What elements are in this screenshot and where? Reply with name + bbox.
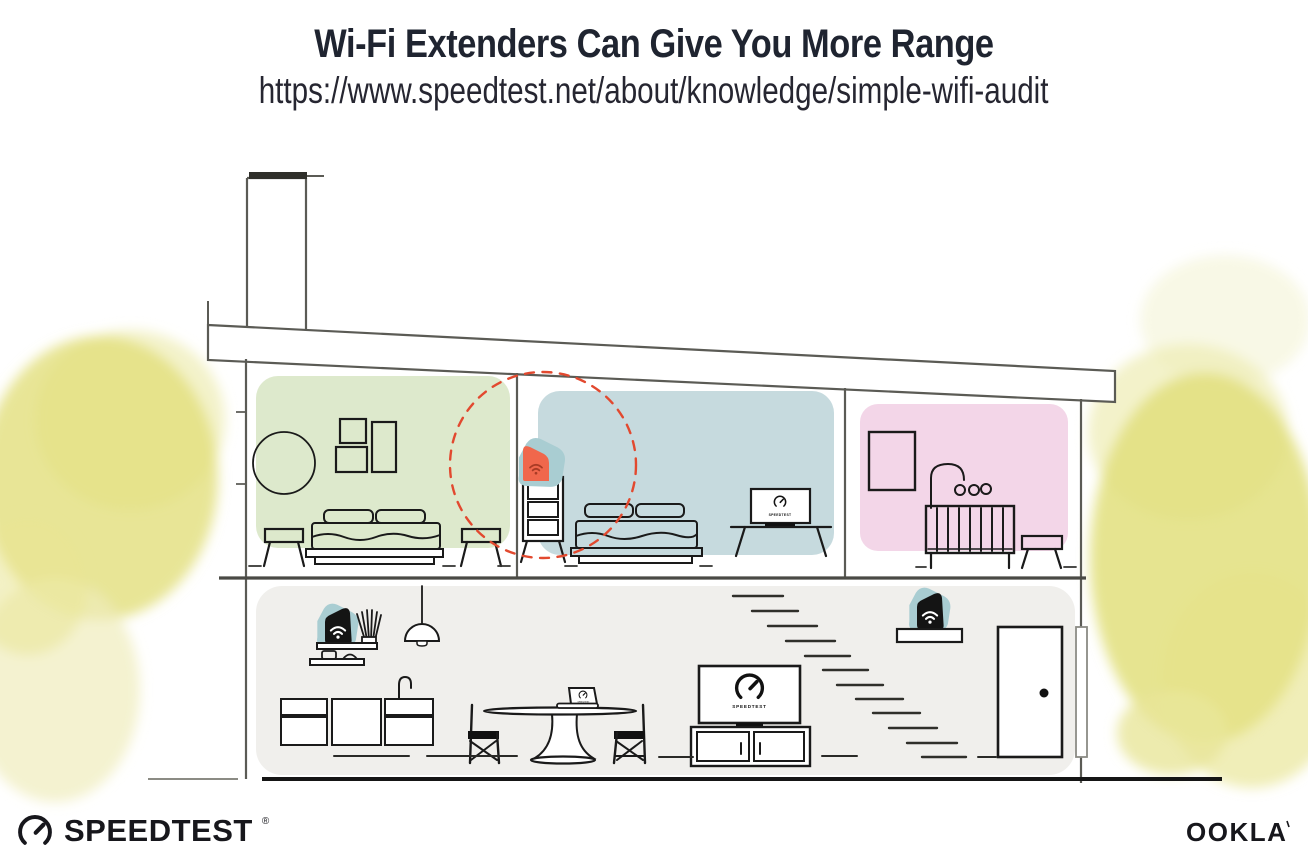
speedtest-logo: SPEEDTEST® <box>14 810 268 852</box>
speedtest-wordmark: SPEEDTEST <box>64 813 253 849</box>
media-console <box>691 727 810 766</box>
door-knob <box>1040 689 1049 698</box>
ookla-logo: OOKLA <box>1184 812 1294 857</box>
house-cross-section-illustration: SPEEDTEST <box>0 0 1308 861</box>
upstairs-floor-marks <box>249 566 1076 567</box>
tree-left <box>0 330 225 802</box>
tree-right <box>1088 255 1308 788</box>
chimney-cap <box>249 172 307 179</box>
registered-mark: ® <box>262 816 269 827</box>
living-tv-label: SPEEDTEST <box>732 704 767 709</box>
tv-bedroom-label: SPEEDTEST <box>769 513 792 517</box>
ookla-wordmark: OOKLA <box>1184 812 1294 852</box>
chimney <box>247 172 324 331</box>
shelf-upper <box>317 643 377 649</box>
front-door <box>998 627 1062 757</box>
ookla-text: OOKLA <box>1186 817 1287 847</box>
room-bg-bedroom-middle <box>538 391 834 555</box>
living-tv: SPEEDTEST <box>699 666 800 727</box>
nursery-stool <box>1022 536 1062 568</box>
shelf <box>897 629 962 642</box>
speedtest-gauge-icon <box>14 810 56 852</box>
room-bg-ground-floor <box>256 586 1075 775</box>
wall-ticks <box>236 412 246 484</box>
wall-right-panel <box>1076 627 1087 757</box>
